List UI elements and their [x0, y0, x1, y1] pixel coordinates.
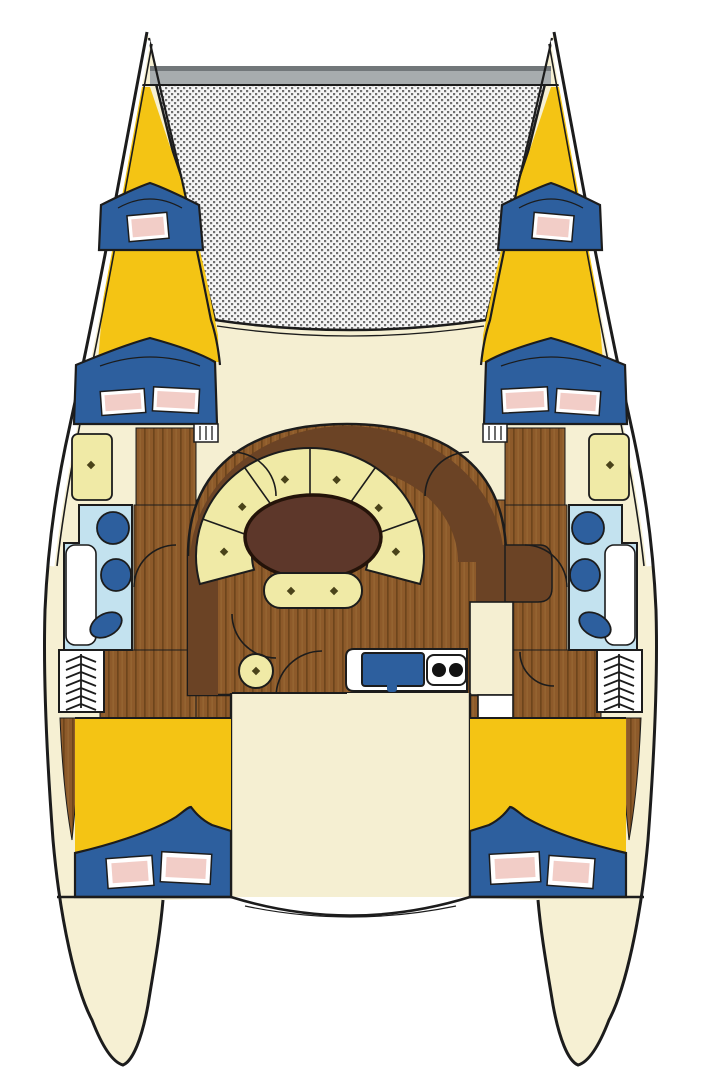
galley-side-unit-lower	[478, 695, 513, 719]
salon-table	[245, 495, 381, 579]
pillow	[152, 387, 199, 413]
salon-stool	[239, 654, 273, 688]
catamaran-deck-plan	[0, 0, 701, 1080]
pillow	[547, 855, 595, 888]
starboard-steps-icon	[483, 424, 507, 442]
cockpit-transom-bench	[231, 897, 470, 916]
pillow	[501, 387, 548, 413]
pillow	[127, 212, 169, 241]
deck-plan-canvas	[0, 0, 701, 1080]
pillow	[160, 852, 212, 885]
starboard-aft-cabin	[470, 718, 626, 897]
forward-crossbeam-edge	[150, 66, 551, 71]
galley-faucet	[387, 683, 397, 692]
toilet-fixture	[101, 559, 131, 591]
stove-burner	[449, 663, 463, 677]
cockpit-floor	[232, 693, 470, 897]
pillow	[532, 212, 574, 241]
galley-sink	[362, 653, 424, 686]
salon-bench	[264, 573, 362, 608]
starboard-companionway-ladder	[597, 650, 642, 712]
port-hull-seat	[72, 434, 112, 500]
stove-burner	[432, 663, 446, 677]
pillow	[100, 388, 146, 415]
port-companionway-ladder	[59, 650, 104, 712]
port-steps-icon	[194, 424, 218, 442]
pillow	[555, 388, 601, 415]
trampoline-net	[156, 84, 545, 330]
starboard-hull-seat	[589, 434, 629, 500]
starboard-wardrobe	[505, 545, 552, 602]
port-aft-cabin	[75, 718, 231, 897]
toilet-fixture	[570, 559, 600, 591]
pillow	[489, 852, 541, 885]
sink-fixture	[572, 512, 604, 544]
sink-fixture	[97, 512, 129, 544]
pillow	[106, 855, 154, 888]
galley-side-unit	[470, 602, 513, 695]
